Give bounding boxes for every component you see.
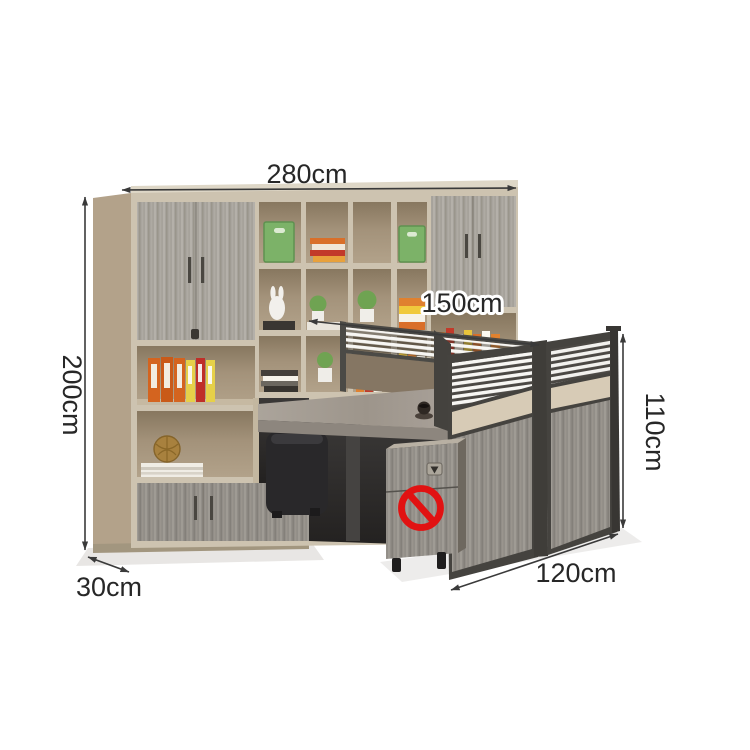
door-handle (201, 257, 204, 283)
mobile-pedestal (386, 438, 466, 572)
product-dimension-image: 280cm 200cm 150cm 110cm 30cm 120cm (0, 0, 750, 750)
dimension-label-left-height: 200cm (57, 354, 87, 435)
door-handle (478, 234, 481, 258)
workstation-illustration: 280cm 200cm 150cm 110cm 30cm 120cm (0, 0, 750, 750)
pedestal-leg (392, 558, 401, 572)
door-handle (194, 496, 197, 520)
door-handle (210, 496, 213, 520)
dimension-label-panel-height: 110cm (640, 392, 670, 471)
pedestal-side (458, 438, 466, 553)
cubby (353, 202, 391, 263)
storage-box-green (399, 226, 425, 262)
dimension-label-desk-width: 150cm (421, 288, 502, 318)
binders (186, 358, 215, 402)
plant (358, 291, 377, 323)
dimension-label-desk-depth: 120cm (535, 558, 616, 588)
cabinet-side-panel (93, 193, 131, 550)
decor-shelf (137, 411, 255, 477)
book-stack-line (141, 472, 203, 475)
upper-doors-left (137, 202, 255, 340)
drawer-lock-icon (427, 463, 442, 475)
pedestal-front (386, 443, 458, 559)
book-stack (261, 370, 298, 392)
office-chair (266, 431, 328, 518)
binder-shelf (137, 346, 255, 405)
door-lock-icon (191, 329, 199, 339)
door-handle (188, 257, 191, 283)
book-stack-line (141, 467, 203, 470)
file-boxes-orange (148, 357, 185, 402)
dimension-label-top-width: 280cm (266, 159, 347, 189)
door-handle (465, 234, 468, 258)
side-partition-screen (533, 326, 621, 557)
post-cap (606, 326, 621, 331)
desk-leg-panel (346, 423, 360, 541)
dimension-label-cabinet-depth: 30cm (76, 572, 142, 602)
screen-wood-panel (551, 400, 610, 549)
storage-box-green (264, 222, 294, 262)
pedestal-leg (437, 552, 446, 569)
book-stack (310, 238, 345, 262)
screen-corner-post (533, 340, 548, 557)
screen-post (340, 321, 346, 392)
